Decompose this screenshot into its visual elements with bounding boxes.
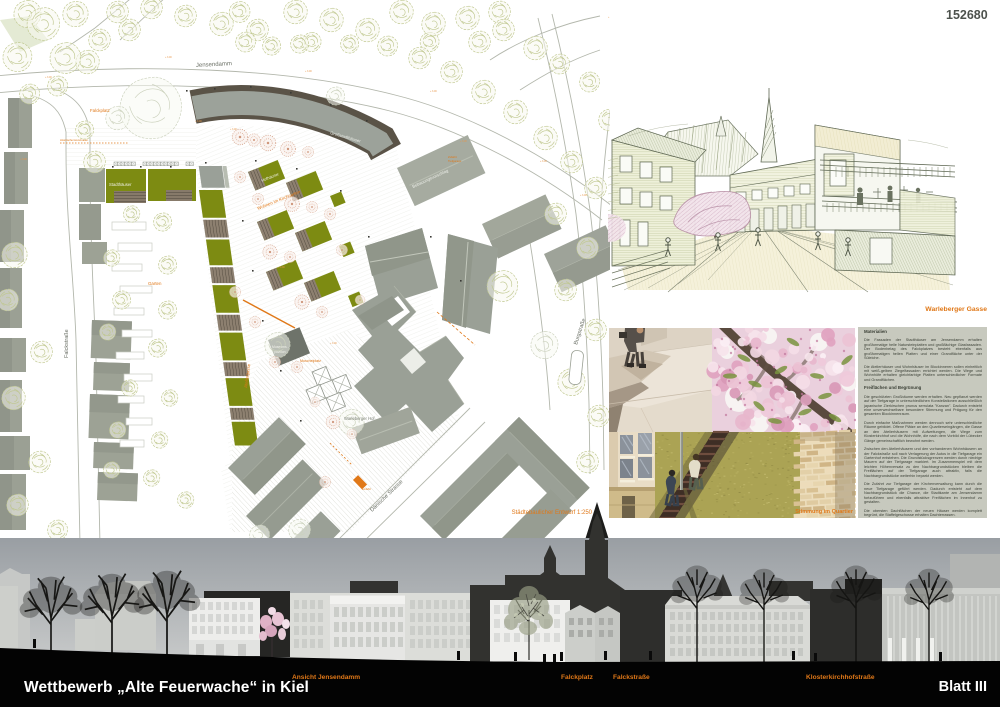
svg-text:+ 3.00: + 3.00 <box>608 16 610 19</box>
svg-text:Historische Grenzmauer: Historische Grenzmauer <box>60 138 88 142</box>
svg-text:Einfahrt: Einfahrt <box>362 487 371 491</box>
svg-text:+ 3.00: + 3.00 <box>165 56 172 59</box>
svg-text:+ 3.00: + 3.00 <box>195 120 202 123</box>
svg-text:+ 3.00: + 3.00 <box>430 90 437 93</box>
svg-text:Falckplatz: Falckplatz <box>90 108 110 113</box>
svg-text:Muschelplatz: Muschelplatz <box>300 359 321 363</box>
svg-text:Warleberger Gasse: Warleberger Gasse <box>925 306 987 313</box>
svg-text:+ 3.00: + 3.00 <box>330 342 337 345</box>
svg-text:+ 3.00: + 3.00 <box>278 266 285 269</box>
svg-text:+ 3.00: + 3.00 <box>460 140 467 143</box>
svg-text:Falckstraße: Falckstraße <box>64 329 70 358</box>
svg-text:Stadthäuser: Stadthäuser <box>109 182 132 187</box>
svg-text:Warleberger Hof: Warleberger Hof <box>344 416 375 421</box>
svg-text:+ 3.00: + 3.00 <box>580 194 587 197</box>
svg-text:+ 3.00: + 3.00 <box>20 158 27 161</box>
svg-text:+ 3.00: + 3.00 <box>540 160 547 163</box>
svg-text:+ 3.00: + 3.00 <box>230 128 237 131</box>
svg-text:+ 3.00: + 3.00 <box>305 70 312 73</box>
svg-text:+ 3.00: + 3.00 <box>45 76 52 79</box>
svg-text:Garten: Garten <box>148 281 162 286</box>
svg-text:Tiefgarage: Tiefgarage <box>448 159 462 163</box>
